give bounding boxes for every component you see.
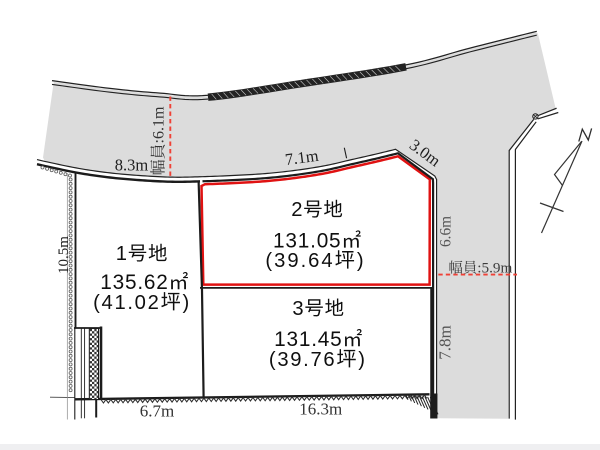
svg-text:8.3m: 8.3m <box>115 156 149 175</box>
svg-text:): ) <box>358 349 366 371</box>
svg-text:131.45: 131.45 <box>274 328 342 351</box>
svg-text:2: 2 <box>291 199 303 221</box>
svg-text:6.7m: 6.7m <box>140 402 174 421</box>
svg-text:135.62: 135.62 <box>100 271 168 294</box>
svg-text:(41.02: (41.02 <box>93 292 160 314</box>
svg-text:7.8m: 7.8m <box>435 325 454 359</box>
svg-text:16.3m: 16.3m <box>299 400 342 419</box>
svg-text:1: 1 <box>116 243 128 265</box>
svg-text:): ) <box>357 250 366 272</box>
svg-text::5.9m: :5.9m <box>477 260 512 277</box>
svg-text::6.1m: :6.1m <box>151 106 168 143</box>
svg-text:): ) <box>182 292 190 314</box>
svg-text:(39.64: (39.64 <box>265 250 334 272</box>
svg-text:10.5m: 10.5m <box>56 236 72 274</box>
svg-text:(39.76: (39.76 <box>269 349 336 371</box>
svg-text:6.6m: 6.6m <box>438 216 455 247</box>
svg-text:3: 3 <box>292 298 304 320</box>
